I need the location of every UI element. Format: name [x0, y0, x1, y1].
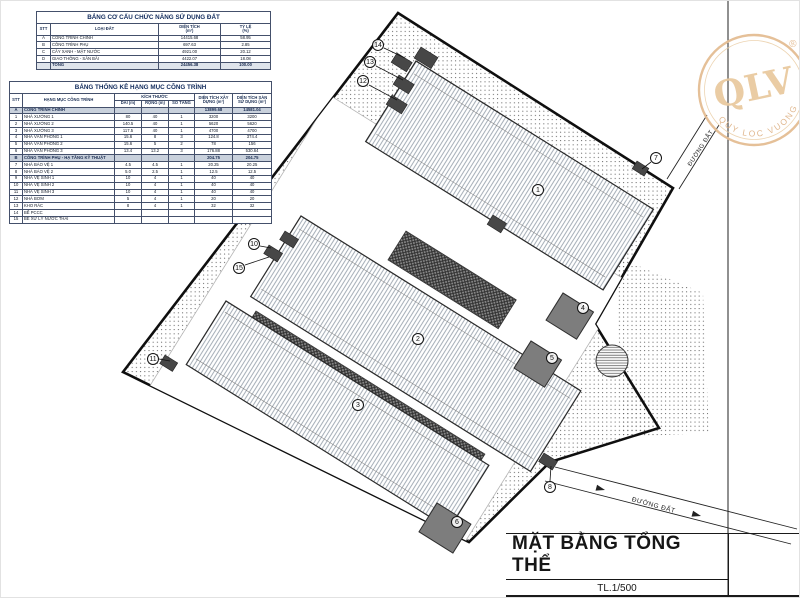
table-cell: 2.85 [221, 42, 271, 49]
table-cell: NHÀ BẢO VỆ 2 [23, 169, 115, 176]
table-cell: KHO RÁC [23, 203, 115, 210]
table-cell: 20 [233, 196, 272, 203]
table-cell: B [37, 42, 51, 49]
table-cell: 80 [115, 114, 142, 121]
table-row: 8NHÀ BẢO VỆ 25.02.5112.512.5 [10, 169, 272, 176]
table-row: 2NHÀ XƯỞNG 2140.540156205620 [10, 121, 272, 128]
table-cell: 100.00 [221, 62, 271, 69]
table-cell: 204.75 [233, 155, 272, 162]
table-cell: NHÀ BƠM [23, 196, 115, 203]
table-row: 6NHÀ VĂN PHÒNG 313.413.23176.88530.64 [10, 148, 272, 155]
plan-marker-12: 12 [357, 75, 369, 87]
table-cell: CÂY XANH - MẶT NƯỚC [51, 49, 159, 56]
table-cell: NHÀ XƯỞNG 2 [23, 121, 115, 128]
table-cell: B [10, 155, 23, 162]
table-cell: 1 [10, 114, 23, 121]
table-title: BẢNG THỐNG KÊ HẠNG MỤC CÔNG TRÌNH [10, 82, 272, 94]
table-cell: 13899.68 [195, 107, 233, 114]
table-cell: 1 [169, 182, 195, 189]
table-cell: 10 [115, 189, 142, 196]
table-cell: 20.12 [221, 49, 271, 56]
table-row: ACÔNG TRÌNH CHÍNH13899.6814581.04 [10, 107, 272, 114]
table-cell: 4.5 [142, 162, 169, 169]
table-cell: 20.25 [233, 162, 272, 169]
table-cell: 2.5 [142, 169, 169, 176]
building-items-table: BẢNG THỐNG KÊ HẠNG MỤC CÔNG TRÌNH STT HẠ… [9, 81, 272, 224]
table-cell: 58.95 [221, 35, 271, 42]
table-cell: 7 [10, 162, 23, 169]
table-cell: 32 [233, 203, 272, 210]
table-cell: 24456.38 [159, 62, 221, 69]
table-cell: 12 [10, 196, 23, 203]
table-title: BẢNG CƠ CẤU CHỨC NĂNG SỬ DỤNG ĐẤT [37, 12, 271, 24]
table-cell: 13 [10, 203, 23, 210]
table-cell: 2 [169, 141, 195, 148]
table-row: 12NHÀ BƠM5412020 [10, 196, 272, 203]
plan-marker-13: 13 [364, 56, 376, 68]
table-cell: 13.2 [142, 148, 169, 155]
table-cell [169, 210, 195, 217]
table-cell [37, 62, 51, 69]
table-cell: CÔNG TRÌNH CHÍNH [23, 107, 115, 114]
table-cell: C [37, 49, 51, 56]
table-cell: 5 [10, 141, 23, 148]
plan-marker-3: 3 [352, 399, 364, 411]
table-cell: NHÀ VỆ SINH 1 [23, 175, 115, 182]
table-cell: TỔNG [51, 62, 159, 69]
table-cell: 10 [115, 175, 142, 182]
table-cell: 1 [169, 162, 195, 169]
table-cell: 156 [233, 141, 272, 148]
table-cell: 4700 [233, 128, 272, 135]
table-cell [195, 210, 233, 217]
table-cell: 3 [169, 134, 195, 141]
table-cell: 8 [115, 203, 142, 210]
plan-marker-7: 7 [650, 152, 662, 164]
table-cell: 10 [10, 182, 23, 189]
table-cell [115, 210, 142, 217]
table-cell: 5620 [195, 121, 233, 128]
table-cell: 1 [169, 114, 195, 121]
table-row: BCÔNG TRÌNH PHỤ - HẠ TẦNG KỸ THUẬT204.75… [10, 155, 272, 162]
table-cell: 2 [10, 121, 23, 128]
table-cell: 40 [233, 189, 272, 196]
table-cell: 5.0 [115, 169, 142, 176]
table-cell: 14581.04 [233, 107, 272, 114]
table-cell: 1 [169, 189, 195, 196]
table-cell: 6 [10, 148, 23, 155]
table-cell: BỂ PCCC [23, 210, 115, 217]
plan-marker-15: 15 [233, 262, 245, 274]
table-cell: 20.25 [195, 162, 233, 169]
table-row: 14BỂ PCCC [10, 210, 272, 217]
table-cell: 11 [10, 189, 23, 196]
table-cell: BỂ XỬ LÝ NƯỚC THẢI [23, 216, 115, 223]
table-cell: 40 [142, 121, 169, 128]
table-row: ACÔNG TRÌNH CHÍNH14415.6858.95 [37, 35, 271, 42]
table-cell: 78 [195, 141, 233, 148]
table-cell: 4 [142, 175, 169, 182]
plan-marker-4: 4 [577, 302, 589, 314]
plan-marker-1: 1 [532, 184, 544, 196]
table-cell: CÔNG TRÌNH CHÍNH [51, 35, 159, 42]
table-cell [115, 216, 142, 223]
table-cell: 15 [10, 216, 23, 223]
table-cell: 4.5 [115, 162, 142, 169]
table-row: 9NHÀ VỆ SINH 110414040 [10, 175, 272, 182]
table-cell: 12.5 [195, 169, 233, 176]
plan-marker-14: 14 [372, 39, 384, 51]
table-row: CCÂY XANH - MẶT NƯỚC4921.0020.12 [37, 49, 271, 56]
road-arrow [596, 485, 606, 493]
table-cell: 8 [10, 169, 23, 176]
sheet-title: MẶT BẰNG TỔNG THỂ [506, 533, 728, 580]
table-cell: 4 [142, 182, 169, 189]
table-cell: 40 [233, 175, 272, 182]
table-row: 11NHÀ VỆ SINH 310414040 [10, 189, 272, 196]
table-cell: 4921.00 [159, 49, 221, 56]
table-cell: 697.63 [159, 42, 221, 49]
table-cell: 4 [142, 203, 169, 210]
table-row: DGIAO THÔNG - SÂN BÃI4422.0718.08 [37, 56, 271, 63]
table-cell [169, 155, 195, 162]
table-cell: 40 [142, 128, 169, 135]
table-row: 1NHÀ XƯỞNG 18040132003200 [10, 114, 272, 121]
table-cell: 4 [142, 189, 169, 196]
table-cell: 1 [169, 203, 195, 210]
table-cell: 117.5 [115, 128, 142, 135]
table-cell: GIAO THÔNG - SÂN BÃI [51, 56, 159, 63]
table-cell: 4 [142, 196, 169, 203]
table-row: 7NHÀ BẢO VỆ 14.54.5120.2520.25 [10, 162, 272, 169]
table-cell: 40 [233, 182, 272, 189]
plan-marker-5: 5 [546, 352, 558, 364]
table-cell: CÔNG TRÌNH PHỤ - HẠ TẦNG KỸ THUẬT [23, 155, 115, 162]
table-row: 13KHO RÁC8413232 [10, 203, 272, 210]
table-cell: 1 [169, 128, 195, 135]
table-cell [142, 216, 169, 223]
table-cell: 14415.68 [159, 35, 221, 42]
table-cell: D [37, 56, 51, 63]
table-cell: 4700 [195, 128, 233, 135]
table-cell [115, 155, 142, 162]
plan-marker-11: 11 [147, 353, 159, 365]
table-cell: 12.5 [233, 169, 272, 176]
table-cell: 15.6 [115, 141, 142, 148]
table-row: BCÔNG TRÌNH PHỤ697.632.85 [37, 42, 271, 49]
table-cell: 1 [169, 196, 195, 203]
table-row: TỔNG24456.38100.00 [37, 62, 271, 69]
table-cell: 1 [169, 175, 195, 182]
table-cell: NHÀ VỆ SINH 2 [23, 182, 115, 189]
registered-mark: ® [788, 38, 798, 50]
table-cell: NHÀ VĂN PHÒNG 2 [23, 141, 115, 148]
road-arrow [692, 511, 702, 519]
logo-text: QLV [710, 59, 798, 117]
plan-marker-2: 2 [412, 333, 424, 345]
table-cell: 8 [142, 134, 169, 141]
table-cell: 140.5 [115, 121, 142, 128]
table-cell [169, 216, 195, 223]
table-cell: 5 [115, 196, 142, 203]
table-cell: 3200 [233, 114, 272, 121]
title-block-empty-cell [728, 534, 800, 595]
table-cell: 20 [195, 196, 233, 203]
table-cell: 9 [10, 175, 23, 182]
table-cell: A [37, 35, 51, 42]
plan-marker-6: 6 [451, 516, 463, 528]
plan-marker-10: 10 [248, 238, 260, 250]
table-row: 4NHÀ VĂN PHÒNG 115.683124.8374.4 [10, 134, 272, 141]
table-cell: 14 [10, 210, 23, 217]
table-cell [233, 216, 272, 223]
title-block: MẶT BẰNG TỔNG THỂ TL.1/500 [506, 533, 800, 597]
table-cell: NHÀ XƯỞNG 1 [23, 114, 115, 121]
table-cell: 15.6 [115, 134, 142, 141]
pond [596, 345, 628, 377]
table-cell: 374.4 [233, 134, 272, 141]
table-cell [195, 216, 233, 223]
table-cell: 124.8 [195, 134, 233, 141]
table-row: 10NHÀ VỆ SINH 210414040 [10, 182, 272, 189]
table-cell [115, 107, 142, 114]
table-cell [142, 210, 169, 217]
table-cell: 4 [10, 134, 23, 141]
table-cell: 3200 [195, 114, 233, 121]
table-cell: 40 [142, 114, 169, 121]
table-cell [142, 107, 169, 114]
table-cell: 32 [195, 203, 233, 210]
table-cell: 1 [169, 169, 195, 176]
table-cell: 176.88 [195, 148, 233, 155]
table-cell: 4422.07 [159, 56, 221, 63]
table-cell: NHÀ BẢO VỆ 1 [23, 162, 115, 169]
table-cell: 10 [115, 182, 142, 189]
table-cell: NHÀ VĂN PHÒNG 3 [23, 148, 115, 155]
table-cell [169, 107, 195, 114]
table-row: 5NHÀ VĂN PHÒNG 215.65278156 [10, 141, 272, 148]
table-cell: 13.4 [115, 148, 142, 155]
land-use-table: BẢNG CƠ CẤU CHỨC NĂNG SỬ DỤNG ĐẤT STT LO… [36, 11, 271, 70]
table-cell: 40 [195, 182, 233, 189]
table-cell: 204.75 [195, 155, 233, 162]
table-cell [233, 210, 272, 217]
plan-marker-8: 8 [544, 481, 556, 493]
table-row: 3NHÀ XƯỞNG 3117.540147004700 [10, 128, 272, 135]
table-cell: NHÀ VỆ SINH 3 [23, 189, 115, 196]
table-cell: 40 [195, 175, 233, 182]
table-row: 15BỂ XỬ LÝ NƯỚC THẢI [10, 216, 272, 223]
table-cell: 3 [10, 128, 23, 135]
table-cell: 18.08 [221, 56, 271, 63]
table-cell: 530.64 [233, 148, 272, 155]
table-cell [142, 155, 169, 162]
table-cell: 1 [169, 121, 195, 128]
table-cell: A [10, 107, 23, 114]
drawing-sheet: ĐƯỜNG ĐẤT ĐƯỜNG ĐẤT 1 2 3 4 5 6 7 8 10 1… [0, 0, 800, 598]
table-cell: NHÀ VĂN PHÒNG 1 [23, 134, 115, 141]
table-cell: 40 [195, 189, 233, 196]
table-cell: 5620 [233, 121, 272, 128]
table-cell: CÔNG TRÌNH PHỤ [51, 42, 159, 49]
sheet-scale: TL.1/500 [593, 583, 640, 596]
table-cell: 3 [169, 148, 195, 155]
table-cell: 5 [142, 141, 169, 148]
table-cell: NHÀ XƯỞNG 3 [23, 128, 115, 135]
